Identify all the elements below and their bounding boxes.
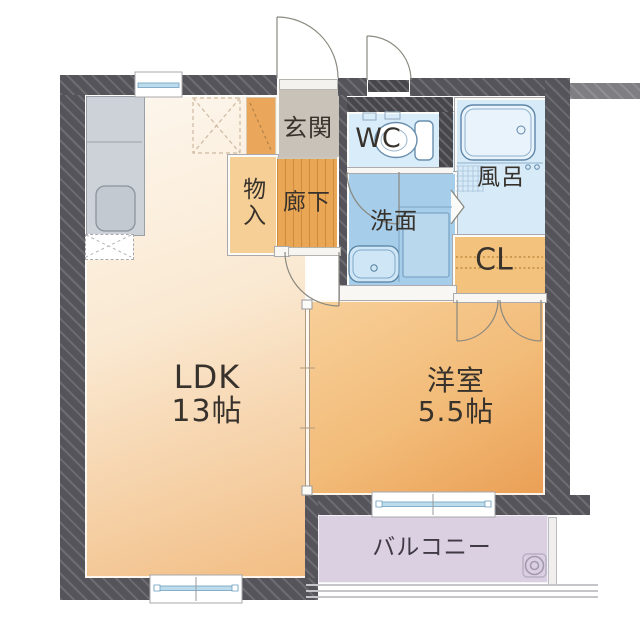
ldk-name: LDK (171, 360, 242, 395)
folding-door-icon (451, 190, 464, 224)
balcony-drain-icon (523, 554, 546, 577)
ldk-bottom-window-icon (150, 575, 242, 603)
meter-door-swing-icon (367, 36, 411, 80)
room-label-storage: 物入 (238, 177, 263, 229)
washbasin-icon (349, 246, 399, 282)
shoe-cabinet-diagonal (250, 103, 271, 150)
room-label-entrance: 玄関 (283, 115, 333, 141)
balcony-window-icon (372, 492, 495, 517)
room-label-bath: 風呂 (477, 165, 525, 190)
western-name: 洋室 (418, 366, 495, 397)
room-label-balcony: バルコニー (372, 535, 492, 560)
room-label-hallway: 廊下 (283, 190, 331, 215)
western-size: 5.5帖 (418, 397, 495, 428)
ldk-door-swing-icon (285, 252, 339, 306)
floor-plan: LDK 13帖 洋室 5.5帖 玄関 物入 廊下 WC 風呂 洗面 CL バルコ… (0, 0, 640, 640)
top-window-icon (135, 72, 182, 97)
kitchen-sink-icon (87, 142, 142, 231)
refrigerator-box-icon (86, 235, 131, 257)
balcony-railing (306, 585, 598, 597)
sliding-door-icon (300, 300, 315, 495)
room-label-washroom: 洗面 (370, 209, 418, 234)
room-label-western: 洋室 5.5帖 (418, 366, 495, 428)
room-label-ldk: LDK 13帖 (171, 360, 242, 428)
closet-double-door-icon (457, 300, 541, 341)
room-label-closet: CL (475, 244, 513, 277)
fixture-overlay (0, 0, 640, 640)
room-label-wc: WC (355, 124, 401, 154)
bathtub-icon (457, 105, 543, 169)
entrance-door-swing-icon (277, 17, 338, 78)
ldk-size: 13帖 (171, 395, 242, 428)
upper-cabinet-dashed-icon (193, 98, 240, 153)
